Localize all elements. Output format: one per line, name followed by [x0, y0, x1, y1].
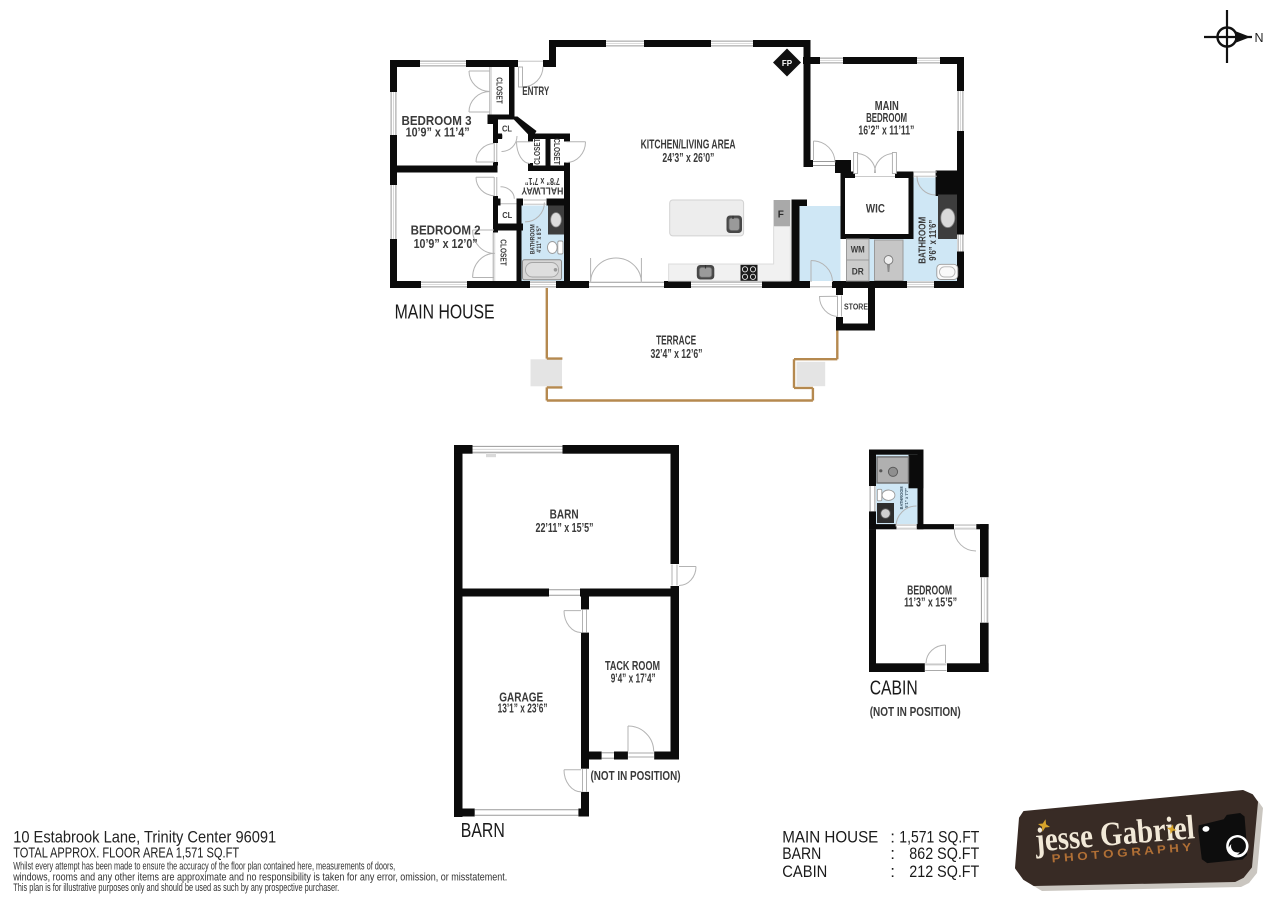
- svg-text:MAIN HOUSE: MAIN HOUSE: [395, 302, 495, 324]
- svg-text:7’8” x 7’1”: 7’8” x 7’1”: [525, 175, 560, 186]
- svg-text:This plan is for illustrative: This plan is for illustrative purposes o…: [13, 882, 339, 894]
- svg-text:N: N: [1255, 31, 1264, 45]
- svg-text:BARN: BARN: [461, 819, 505, 842]
- svg-text:BARN: BARN: [550, 508, 579, 522]
- svg-text:24’3” x 26’0”: 24’3” x 26’0”: [662, 151, 714, 165]
- svg-text:16’2” x 11’11”: 16’2” x 11’11”: [858, 124, 914, 138]
- svg-text::: :: [890, 862, 895, 881]
- svg-text::: :: [890, 844, 895, 863]
- svg-text:TERRACE: TERRACE: [656, 334, 696, 348]
- svg-text:FP: FP: [782, 59, 793, 68]
- svg-text:(NOT IN POSITION): (NOT IN POSITION): [870, 705, 961, 719]
- svg-text:DR: DR: [852, 266, 864, 276]
- svg-text:4’11” x 8’5”: 4’11” x 8’5”: [536, 226, 543, 253]
- svg-text:ENTRY: ENTRY: [522, 86, 549, 98]
- svg-text:CLOSET: CLOSET: [499, 239, 509, 266]
- svg-text:BARN: BARN: [782, 844, 821, 863]
- svg-text:BEDROOM 2: BEDROOM 2: [411, 223, 481, 237]
- svg-text:32’4” x 12’6”: 32’4” x 12’6”: [651, 347, 703, 361]
- svg-text:CLOSET: CLOSET: [532, 138, 542, 165]
- svg-text:TOTAL APPROX. FLOOR AREA 1,571: TOTAL APPROX. FLOOR AREA 1,571 SQ.FT: [13, 846, 239, 862]
- svg-text:BATHROOM: BATHROOM: [916, 217, 928, 264]
- svg-text:9’6” x 11’6”: 9’6” x 11’6”: [928, 220, 939, 261]
- svg-text:(NOT IN POSITION): (NOT IN POSITION): [591, 769, 681, 783]
- svg-text:10’9” x 11’4”: 10’9” x 11’4”: [406, 126, 470, 140]
- svg-text:CABIN: CABIN: [782, 862, 827, 881]
- svg-text:STORE: STORE: [844, 302, 869, 311]
- svg-text:9’4” x 17’4”: 9’4” x 17’4”: [611, 671, 656, 685]
- svg-text:WM: WM: [851, 244, 865, 254]
- svg-text:CABIN: CABIN: [870, 677, 918, 700]
- svg-text:WIC: WIC: [866, 202, 885, 216]
- svg-text:10’9” x 12’0”: 10’9” x 12’0”: [414, 237, 478, 251]
- svg-text:KITCHEN/LIVING AREA: KITCHEN/LIVING AREA: [641, 138, 736, 152]
- svg-text:11’3” x 15’5”: 11’3” x 15’5”: [904, 596, 957, 610]
- svg-text:CLOSET: CLOSET: [495, 77, 505, 104]
- svg-text:CL: CL: [502, 124, 512, 134]
- svg-text:CLOSET: CLOSET: [552, 138, 562, 165]
- svg-text:5’1” x 7’7”: 5’1” x 7’7”: [904, 488, 909, 508]
- svg-text:F: F: [778, 210, 784, 221]
- svg-text:212 SQ.FT: 212 SQ.FT: [909, 862, 979, 881]
- svg-text:22’11” x 15’5”: 22’11” x 15’5”: [536, 521, 594, 535]
- svg-text:13’1” x 23’6”: 13’1” x 23’6”: [498, 702, 548, 716]
- svg-text:862 SQ.FT: 862 SQ.FT: [909, 844, 979, 863]
- svg-text:CL: CL: [502, 210, 512, 220]
- svg-text:10 Estabrook Lane, Trinity Cen: 10 Estabrook Lane, Trinity Center 96091: [13, 827, 276, 846]
